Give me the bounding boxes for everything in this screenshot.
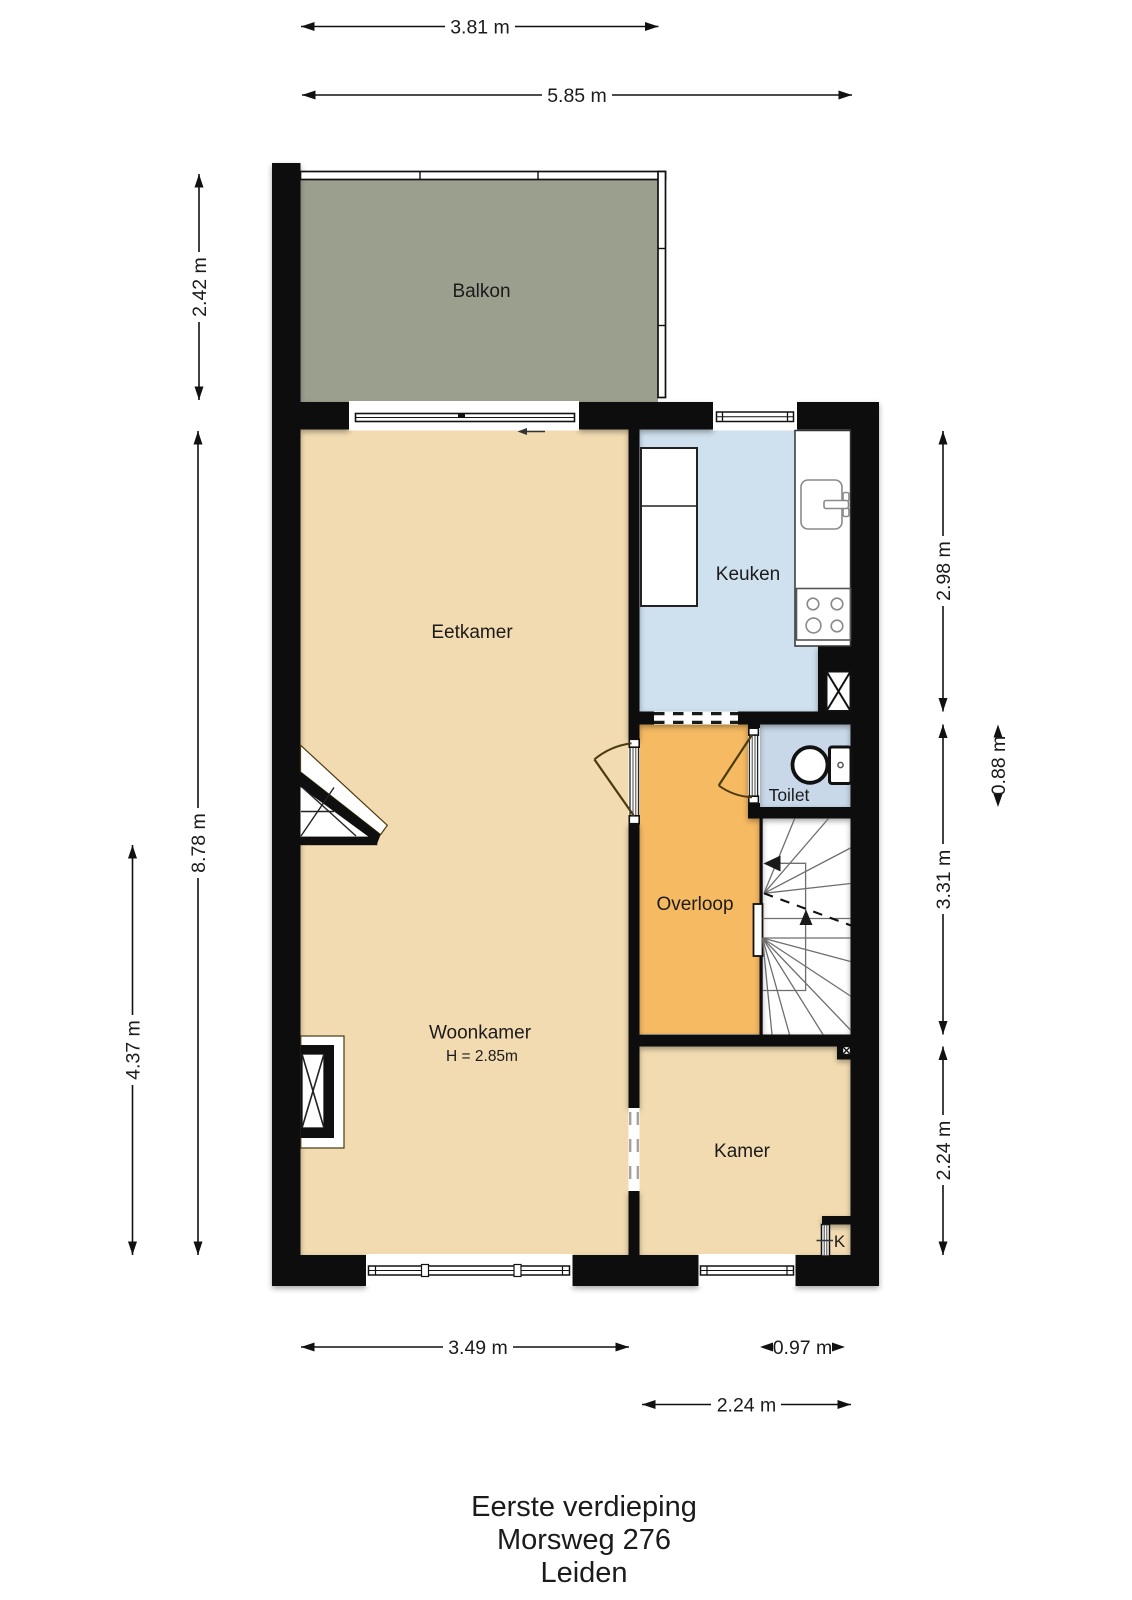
svg-text:Toilet: Toilet	[769, 785, 810, 805]
svg-text:5.85 m: 5.85 m	[547, 85, 607, 107]
svg-text:Morsweg 276: Morsweg 276	[497, 1524, 671, 1556]
svg-text:Balkon: Balkon	[452, 281, 510, 302]
svg-text:Eerste verdieping: Eerste verdieping	[471, 1491, 697, 1523]
svg-text:H = 2.85m: H = 2.85m	[446, 1048, 518, 1065]
svg-text:3.49 m: 3.49 m	[448, 1337, 508, 1359]
svg-text:3.31 m: 3.31 m	[933, 850, 955, 910]
svg-text:2.98 m: 2.98 m	[933, 541, 955, 601]
svg-text:Overloop: Overloop	[656, 894, 733, 915]
svg-text:0.97 m: 0.97 m	[773, 1337, 833, 1359]
svg-text:2.24 m: 2.24 m	[933, 1121, 955, 1181]
svg-text:Keuken: Keuken	[716, 564, 780, 585]
svg-text:8.78 m: 8.78 m	[188, 813, 210, 873]
svg-text:4.37 m: 4.37 m	[123, 1020, 145, 1080]
svg-text:K: K	[834, 1232, 846, 1251]
svg-text:Kamer: Kamer	[714, 1141, 771, 1162]
svg-text:Eetkamer: Eetkamer	[431, 622, 513, 643]
svg-text:Leiden: Leiden	[540, 1557, 627, 1589]
svg-text:0.88 m: 0.88 m	[988, 736, 1010, 796]
svg-text:2.24 m: 2.24 m	[717, 1395, 777, 1417]
svg-text:Woonkamer: Woonkamer	[429, 1023, 532, 1044]
svg-text:3.81 m: 3.81 m	[450, 17, 510, 39]
svg-text:2.42 m: 2.42 m	[189, 257, 211, 317]
